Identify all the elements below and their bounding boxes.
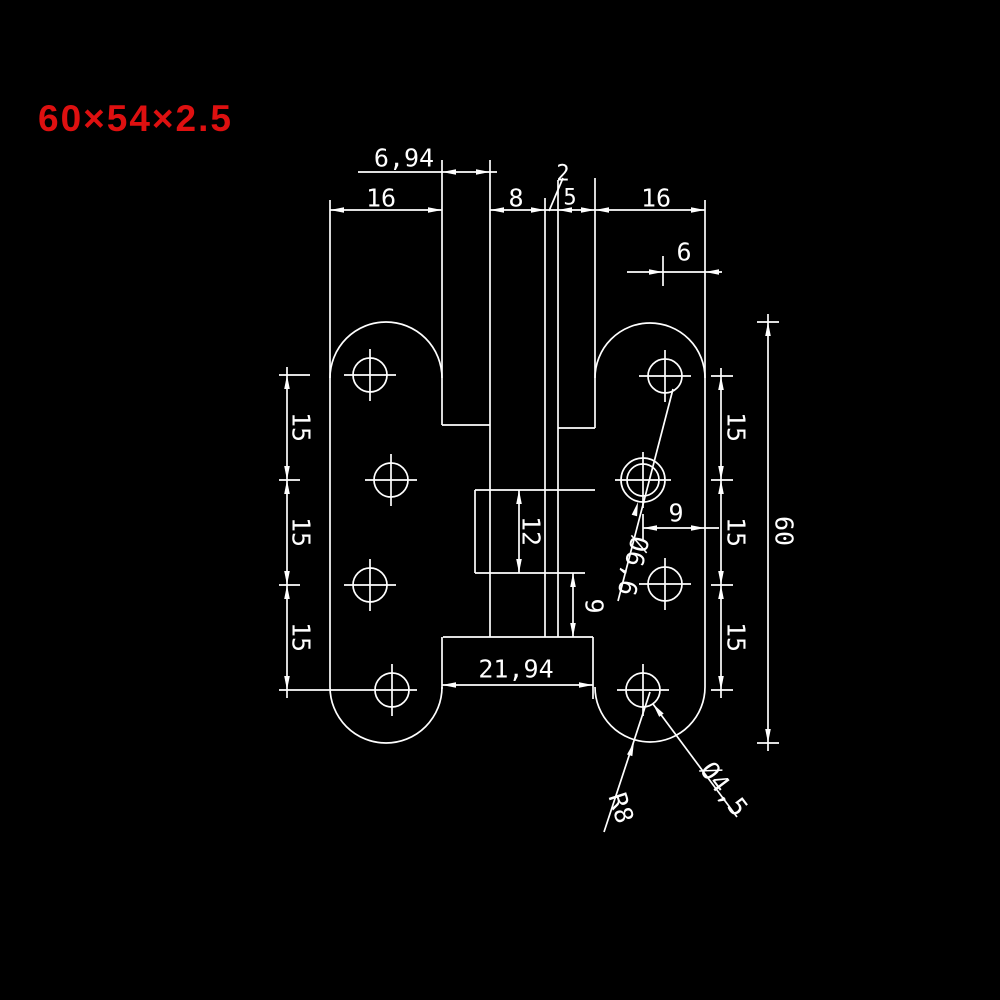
dim-9-right: 9 [668, 499, 683, 528]
dimension-arrowhead [442, 682, 456, 688]
dimension-arrowhead [718, 466, 724, 480]
cad-drawing-canvas: 60×54×2.5 6,9416825166151515151515601299… [0, 0, 1000, 1000]
dimension-arrowhead [284, 375, 290, 389]
dimension-arrowhead [476, 169, 490, 175]
dimension-arrowhead [516, 490, 522, 504]
dimension-arrowhead [570, 573, 576, 587]
dim-15-left-2: 15 [287, 517, 316, 547]
dimension-arrowhead [718, 676, 724, 690]
dim-dia-4-5: Ø4,5 [694, 756, 753, 822]
dim-8: 8 [508, 184, 523, 213]
dimension-arrowhead [765, 729, 771, 743]
dimension-arrowhead [691, 525, 705, 531]
dimension-arrowhead [428, 207, 442, 213]
dimension-arrowhead [718, 480, 724, 494]
dimension-arrowhead [570, 623, 576, 637]
dimension-arrowhead [284, 585, 290, 599]
dimension-arrowhead [595, 207, 609, 213]
dim-5: 5 [563, 186, 576, 211]
dim-6-94: 6,94 [374, 144, 434, 173]
dimension-arrowhead [284, 571, 290, 585]
dim-21-94: 21,94 [478, 655, 553, 684]
dim-15-right-3: 15 [722, 622, 751, 652]
dim-60: 60 [770, 516, 799, 546]
hinge-technical-drawing: 6,941682516615151515151560129921,94Ø6,6Ø… [0, 0, 1000, 1000]
dimension-arrowhead [718, 376, 724, 390]
dimension-arrowhead [718, 585, 724, 599]
dimension-arrowhead [330, 207, 344, 213]
dimension-arrowhead [649, 269, 663, 275]
dimension-arrowhead [705, 269, 719, 275]
dim-15-right-2: 15 [722, 517, 751, 547]
dimension-arrowhead [284, 676, 290, 690]
dimension-arrowhead [284, 480, 290, 494]
dim-15-right-1: 15 [722, 412, 751, 442]
dimension-arrowhead [490, 207, 504, 213]
dim-2: 2 [556, 162, 569, 187]
dimension-arrowhead [579, 682, 593, 688]
plate-corner-arc [595, 687, 705, 742]
dimension-arrowhead [284, 466, 290, 480]
dimension-arrowhead [581, 207, 595, 213]
dim-16-left: 16 [366, 184, 396, 213]
dimension-arrowhead [718, 571, 724, 585]
dimension-arrowhead [632, 501, 641, 516]
dimension-arrowhead [691, 207, 705, 213]
dimension-arrowhead [627, 741, 637, 756]
dim-15-left-3: 15 [287, 622, 316, 652]
dimension-arrowhead [531, 207, 545, 213]
dimension-arrowhead [765, 322, 771, 336]
dim-16-right: 16 [641, 184, 671, 213]
dimension-arrowhead [516, 559, 522, 573]
dimension-arrowhead [643, 525, 657, 531]
dimension-arrowhead [442, 169, 456, 175]
dim-12: 12 [517, 516, 546, 546]
dim-9-center: 9 [580, 598, 609, 613]
dim-6: 6 [676, 238, 691, 267]
dim-15-left-1: 15 [287, 412, 316, 442]
plate-corner-arc [330, 687, 442, 743]
